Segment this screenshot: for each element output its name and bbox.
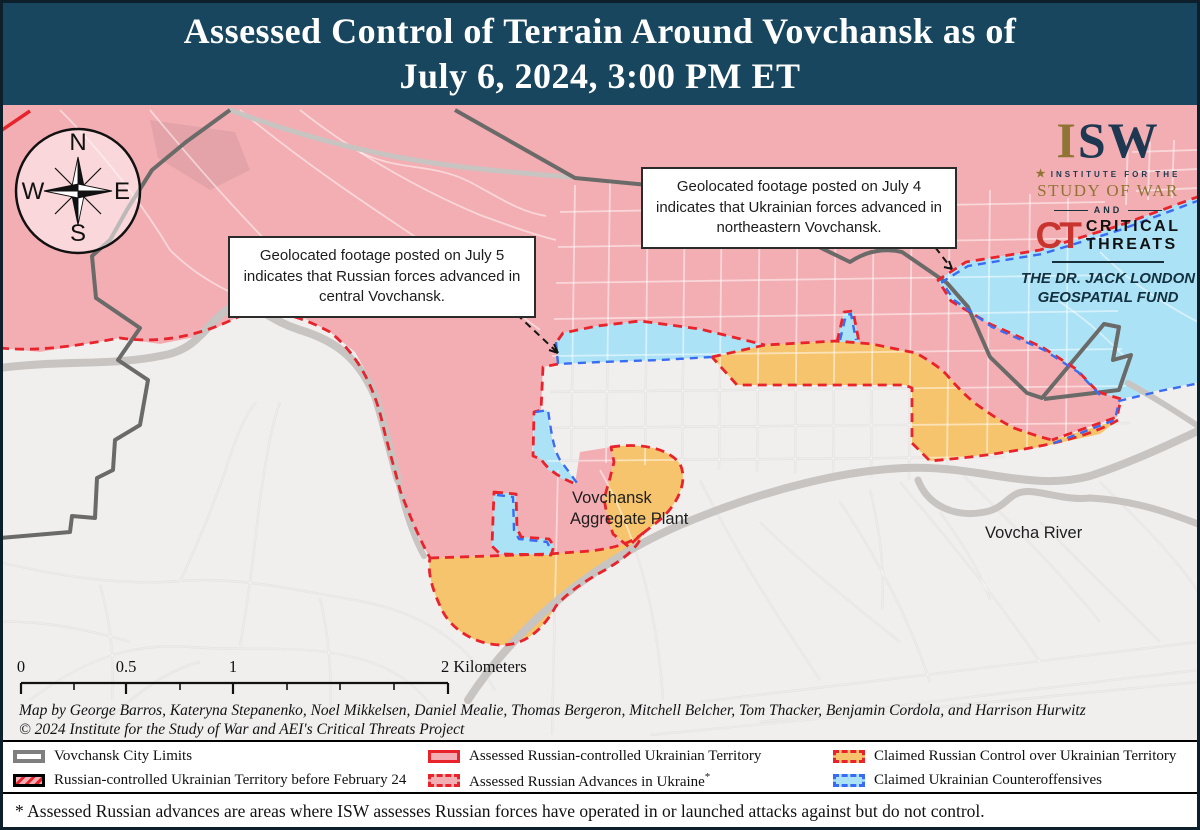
logo-and-divider: AND [1017,205,1199,215]
scale-tick-2km: 2 Kilometers [441,657,527,676]
scale-tick-0: 0 [17,657,25,676]
title-band: Assessed Control of Terrain Around Vovch… [3,3,1197,105]
compass-n: N [69,129,86,156]
compass-e: E [114,178,130,205]
claimed-russian-swatch [833,750,865,763]
legend-item-claimed-ukrainian: Claimed Ukrainian Counteroffensives [833,771,1176,790]
russian-advances-swatch [428,774,460,787]
legend-item-claimed-russian: Claimed Russian Control over Ukrainian T… [833,747,1176,766]
page-title-line1: Assessed Control of Terrain Around Vovch… [184,9,1017,54]
compass-w: W [22,178,45,205]
ct-threats: THREATS [1086,236,1178,253]
legend-item-city-limits: Vovchansk City Limits [13,747,406,766]
scale-tick-05: 0.5 [116,657,137,676]
pre-feb24-swatch [13,774,45,787]
map-attribution: Map by George Barros, Kateryna Stepanenk… [19,702,1189,740]
compass-s: S [70,220,86,247]
label-aggregate-plant-line1: Vovchansk [572,489,653,507]
isw-map-page: Vovchansk Aggregate Plant Vovcha River N… [0,0,1200,830]
callout-july5: Geolocated footage posted on July 5 indi… [228,236,536,318]
page-title-line2: July 6, 2024, 3:00 PM ET [399,54,800,99]
footnote-band: * Assessed Russian advances are areas wh… [3,794,1197,827]
compass-rose-icon: N S E W [16,129,140,253]
logo-divider-line [1052,261,1164,263]
footnote-text: * Assessed Russian advances are areas wh… [15,801,985,822]
isw-study-of-war: STUDY OF WAR [1017,181,1199,201]
ct-critical: CRITICAL [1086,218,1181,235]
isw-institute-line: ★ INSTITUTE FOR THE [1017,167,1199,180]
geospatial-fund-label: THE DR. JACK LONDONGEOSPATIAL FUND [1017,269,1199,308]
attribution-authors: Map by George Barros, Kateryna Stepanenk… [19,702,1189,721]
legend-item-russian-controlled: Assessed Russian-controlled Ukrainian Te… [428,747,761,766]
claimed-ukrainian-swatch [833,774,865,787]
russian-controlled-swatch [428,750,460,763]
callout-july4: Geolocated footage posted on July 4 indi… [641,167,957,249]
attribution-copyright: © 2024 Institute for the Study of War an… [19,721,1189,740]
label-vovcha-river: Vovcha River [985,524,1083,542]
city-limits-swatch [13,750,45,763]
isw-ct-logo: ISW ★ INSTITUTE FOR THE STUDY OF WAR AND… [1017,115,1199,308]
label-aggregate-plant-line2: Aggregate Plant [570,510,689,528]
ct-monogram: CT [1036,219,1079,252]
isw-star-icon: ★ [1036,168,1046,180]
isw-wordmark: ISW [1017,115,1199,165]
legend-item-pre-feb24: Russian-controlled Ukrainian Territory b… [13,771,406,790]
legend-item-russian-advances: Assessed Russian Advances in Ukraine* [428,771,761,790]
scale-tick-1: 1 [229,657,237,676]
critical-threats-logo: CT CRITICAL THREATS [1017,218,1199,254]
map-legend: Vovchansk City Limits Russian-controlled… [3,740,1197,794]
